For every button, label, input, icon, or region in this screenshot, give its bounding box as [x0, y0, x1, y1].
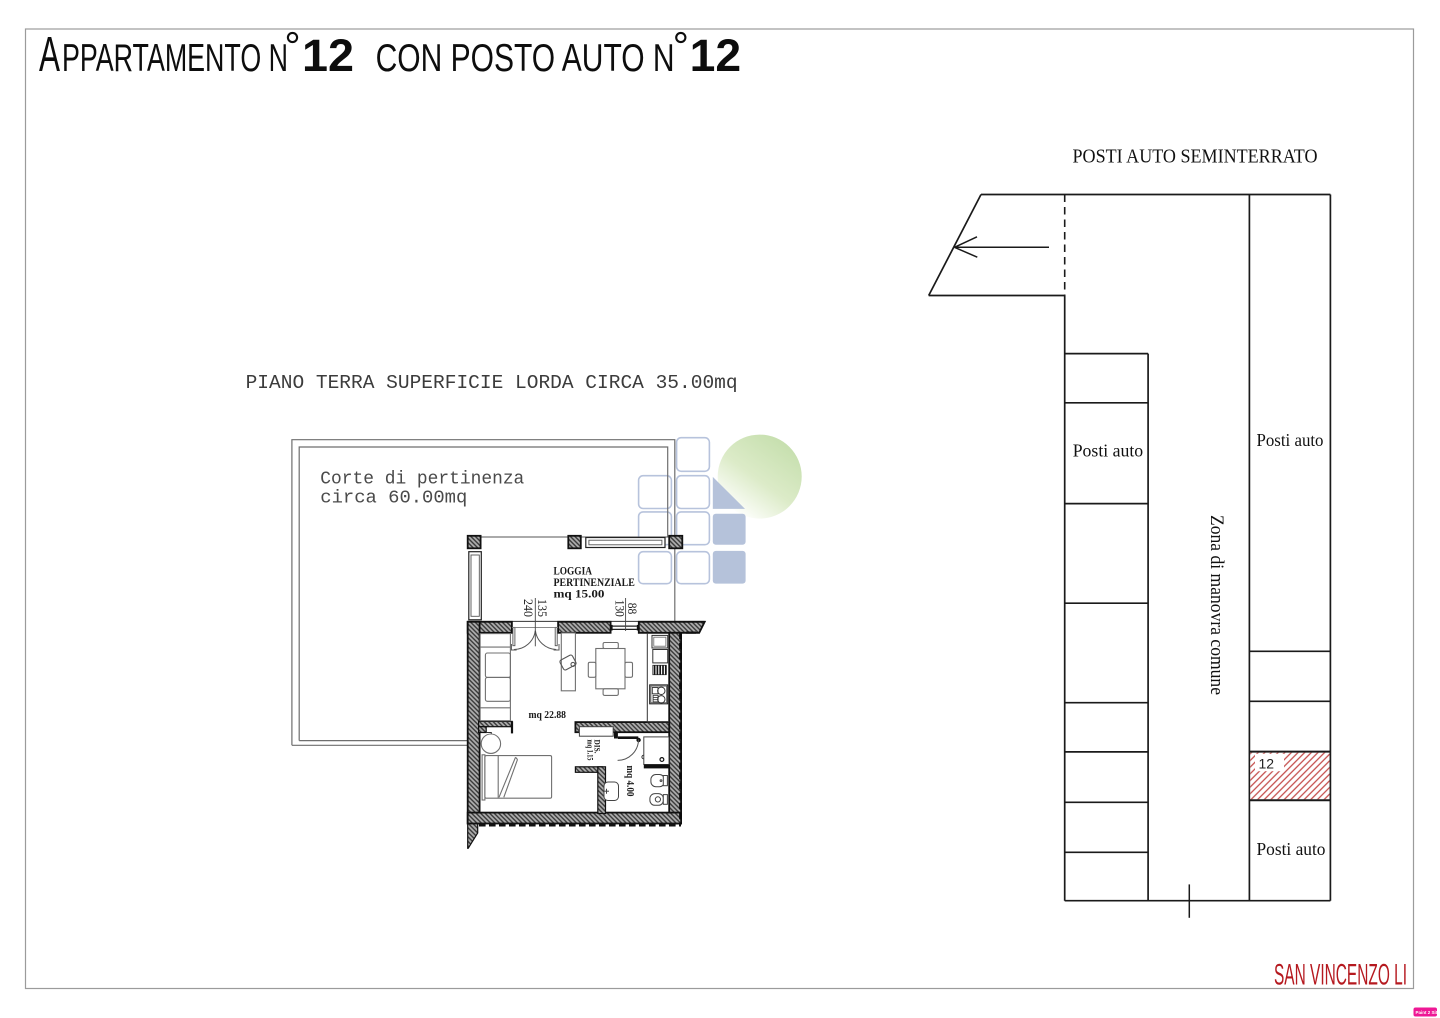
svg-text:Posti auto: Posti auto: [1257, 430, 1324, 450]
svg-text:PERTINENZIALE: PERTINENZIALE: [554, 577, 636, 589]
svg-text:12: 12: [1259, 756, 1275, 772]
svg-text:PPARTAMENTO N: PPARTAMENTO N: [62, 37, 288, 80]
svg-text:88: 88: [625, 603, 639, 615]
svg-text:circa 60.00mq: circa 60.00mq: [320, 488, 467, 508]
svg-text:mq 1.15: mq 1.15: [586, 740, 595, 761]
svg-text:Corte di pertinenza: Corte di pertinenza: [320, 469, 524, 489]
svg-text:130: 130: [612, 600, 626, 617]
svg-text:A: A: [39, 28, 60, 82]
svg-text:Posti auto: Posti auto: [1257, 839, 1326, 859]
svg-text:POSTI AUTO SEMINTERRATO: POSTI AUTO SEMINTERRATO: [1073, 145, 1318, 167]
svg-text:Posti auto: Posti auto: [1073, 440, 1144, 460]
svg-text:135: 135: [535, 599, 549, 617]
svg-text:CON POSTO AUTO N: CON POSTO AUTO N: [376, 37, 675, 80]
svg-text:mq 22.88: mq 22.88: [529, 710, 567, 721]
svg-text:240: 240: [521, 599, 535, 617]
svg-text:mq 4.00: mq 4.00: [624, 766, 635, 797]
svg-text:Zona di manovra comune: Zona di manovra comune: [1206, 515, 1226, 695]
svg-text:SAN VINCENZO LI: SAN VINCENZO LI: [1274, 959, 1407, 992]
svg-text:12: 12: [302, 30, 354, 81]
svg-text:PIANO TERRA SUPERFICIE LORDA C: PIANO TERRA SUPERFICIE LORDA CIRCA 35.00…: [246, 372, 738, 394]
svg-text:mq 15.00: mq 15.00: [554, 589, 605, 601]
svg-text:12: 12: [690, 30, 742, 81]
svg-text:LOGGIA: LOGGIA: [554, 566, 593, 578]
svg-text:Paint 2 Site: Paint 2 Site: [1416, 1010, 1440, 1015]
